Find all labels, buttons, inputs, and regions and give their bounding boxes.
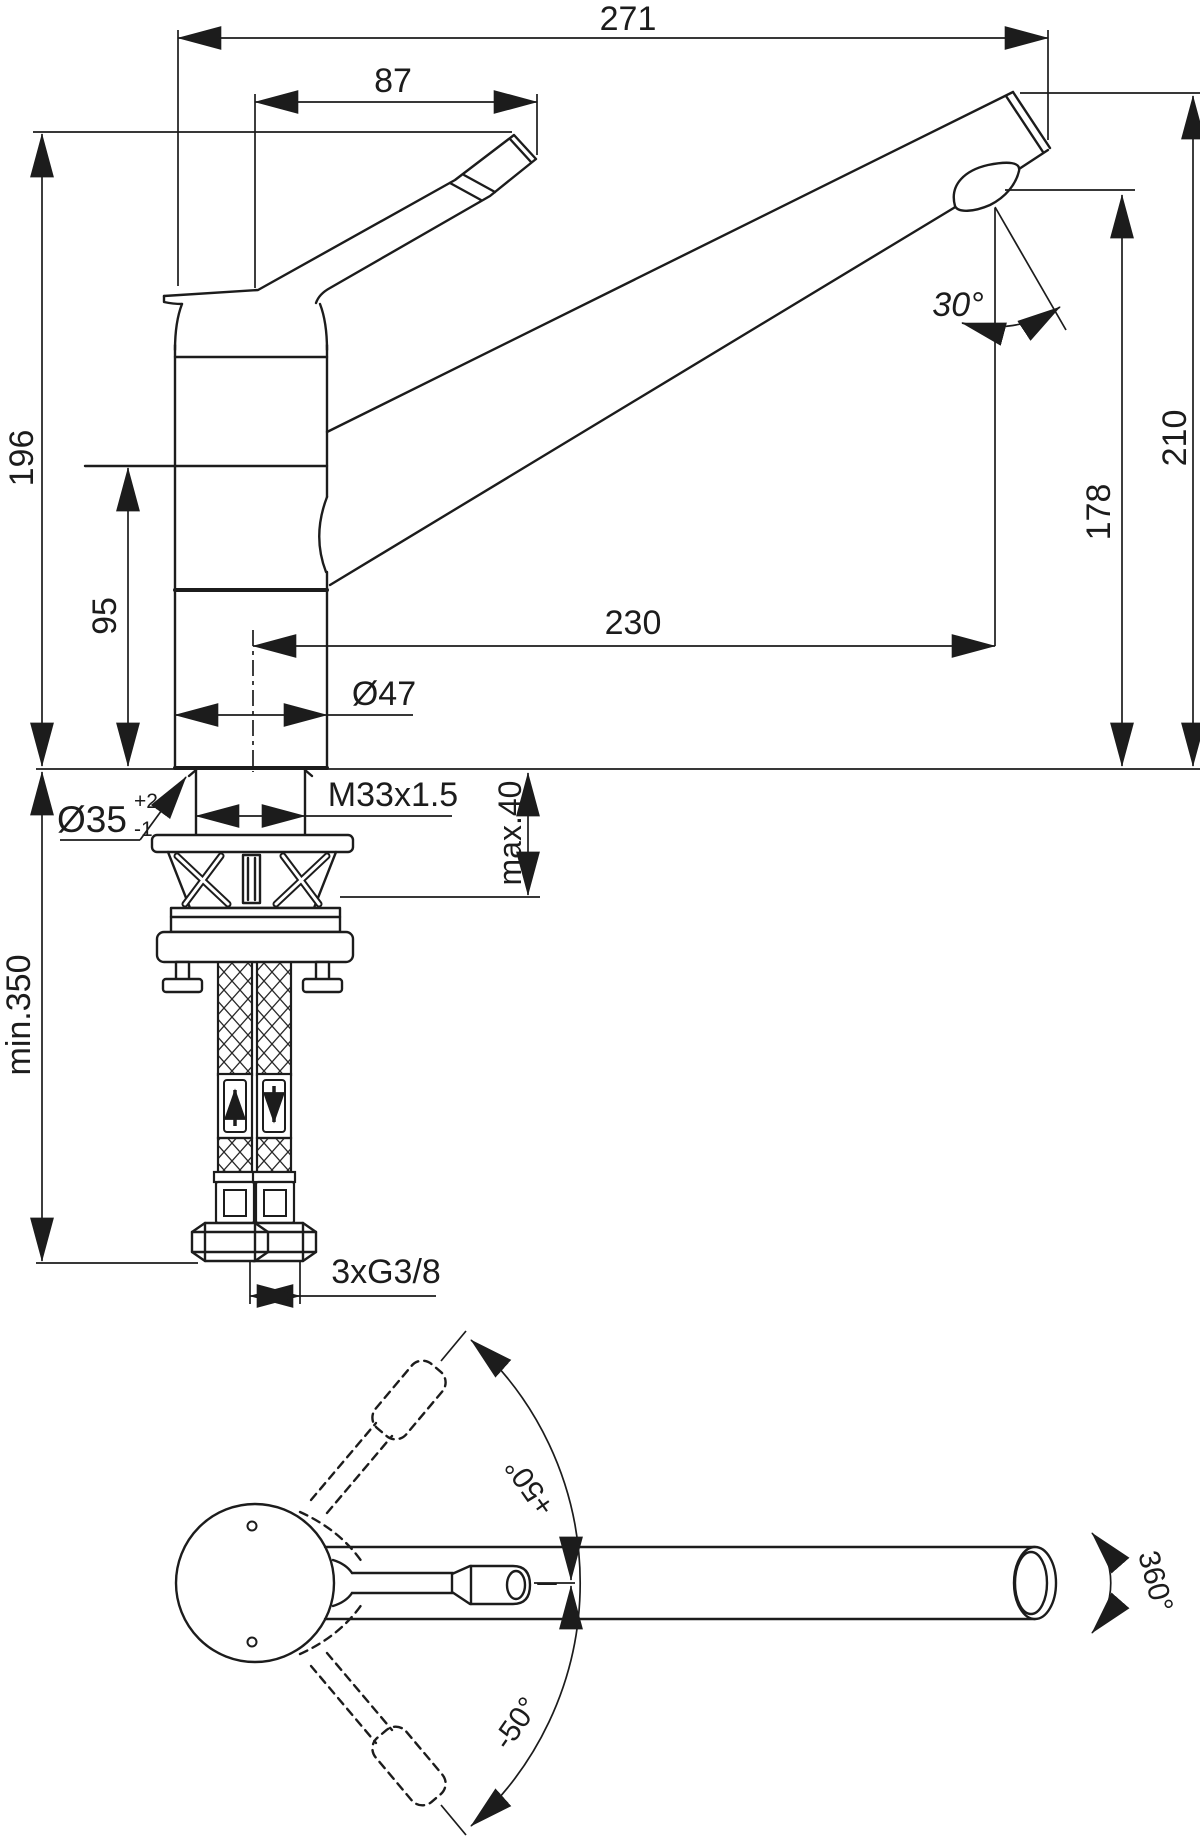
handle-swung-up-dashed — [300, 1355, 451, 1562]
hex-nut — [192, 1223, 268, 1261]
handle-swung-down-dashed — [300, 1604, 451, 1811]
lever-handle — [164, 135, 536, 304]
screw-dot — [248, 1638, 257, 1647]
spout-rotation-arc — [1092, 1533, 1111, 1633]
drawing-canvas: 271 87 196 95 30° 210 178 230 Ø47 Ø35 +2… — [0, 0, 1200, 1836]
dim-spout-outlet-height: 178 — [1080, 484, 1118, 541]
dim-hole-tol-minus: -1 — [134, 818, 153, 841]
faucet-technical-drawing: 271 87 196 95 30° 210 178 230 Ø47 Ø35 +2… — [0, 0, 1200, 1836]
dim-lower-body-height: 95 — [86, 597, 124, 635]
mounting-stud — [316, 962, 329, 980]
faucet-side-view — [85, 92, 1050, 768]
dim-spout-rotation: 360° — [1131, 1547, 1179, 1615]
hose-braid — [218, 955, 252, 1075]
handle-grip-line — [450, 183, 481, 200]
dim-spout-angle: 30° — [932, 286, 983, 324]
hose-collar — [253, 1172, 295, 1182]
dim-min-hose-length: min.350 — [0, 955, 38, 1076]
hose-collar — [214, 1172, 256, 1182]
dim-body-height: 196 — [3, 430, 41, 487]
dim-hole-tol-plus: +2 — [134, 790, 158, 813]
mounting-hardware — [152, 769, 353, 1261]
dim-handle-projection: 87 — [374, 62, 412, 100]
faucet-plan-view — [176, 1331, 1111, 1835]
spout-body-fillet — [319, 497, 327, 572]
faucet-body — [85, 304, 327, 768]
handle-grip-line — [464, 175, 495, 192]
dim-spout-reach: 230 — [605, 604, 662, 642]
dim-overall-reach: 271 — [600, 0, 657, 38]
dim-shank-thread: M33x1.5 — [328, 776, 458, 814]
dim-overall-height: 210 — [1156, 410, 1194, 467]
dim-body-diameter: Ø47 — [352, 675, 416, 713]
hose-braid — [257, 955, 291, 1075]
dim-handle-swing-up: +50° — [499, 1451, 562, 1521]
lock-ring — [171, 908, 340, 932]
dim-supply-connections: 3xG3/8 — [331, 1253, 441, 1291]
mounting-stud — [176, 962, 189, 980]
supply-hoses — [214, 955, 295, 1223]
stud-foot — [163, 979, 202, 992]
aerator-outlet — [954, 163, 1019, 211]
screw-dot — [248, 1522, 257, 1531]
hex-nuts — [192, 1223, 316, 1261]
base-ring — [157, 932, 353, 962]
dim-hole-diameter: Ø35 — [57, 799, 127, 840]
flange-plate — [152, 835, 353, 852]
dim-max-deck-thickness: max.40 — [492, 781, 528, 886]
stud-foot — [303, 979, 342, 992]
spout — [327, 92, 1050, 585]
bracket-slot — [243, 855, 260, 903]
dimension-lines — [33, 30, 1200, 1304]
